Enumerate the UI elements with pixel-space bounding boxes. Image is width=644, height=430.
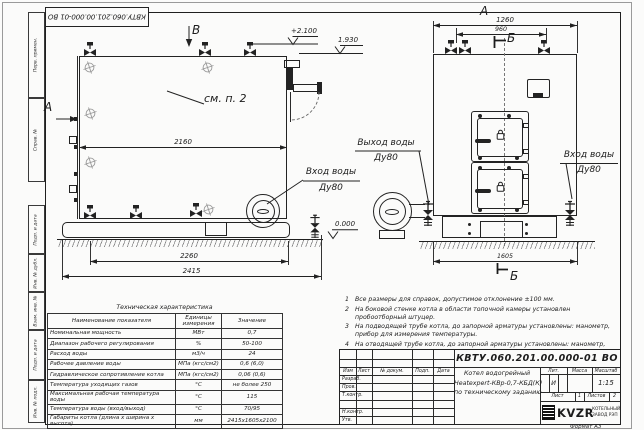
cell-name: Габариты котла (длина х ширина х высота) [48,414,176,428]
top-stamp-number: КВТУ.060.201.00.000-01 ВО [48,13,146,22]
note-item: 2 На боковой стенке котла в области топо… [345,306,617,322]
cell-name: Максимальная рабочая температура воды [48,390,176,404]
cell-value: 2415х1605х2100 [222,414,283,428]
cell-value: не более 250 [222,380,283,390]
table-row: Максимальная рабочая температура воды °С… [48,390,283,404]
note-num: 3 [345,323,355,339]
lit-label: Лит. [540,369,567,374]
door-bolt [478,208,482,212]
dim-960-value: 960 [495,27,507,33]
cell-value: 115 [222,390,283,404]
inlet-right-dn: Ду80 [558,165,620,175]
drawing-sheet: Перв. примен. Справ. № Подп. и дата Инв.… [0,0,644,430]
cell-value: 70/95 [222,404,283,414]
base-bolt [468,232,471,235]
dim-2160: 2160 [79,147,287,148]
frame-strip-label: Инв. № дубл. [34,257,39,288]
table-row: Температура воды (вход/выход) °С 70/95 [48,404,283,414]
crosshair-mark-icon [202,203,215,216]
valve-icon [189,202,203,217]
frame-strip-vzam-inv: Взам. инв. № [28,292,45,330]
note-text: На подводящей трубе котла, до запорной а… [355,323,617,339]
dim-1605-value: 1605 [497,254,513,260]
note-item: 3 На подводящей трубе котла, до запорной… [345,323,617,339]
frame-strip-perv-primen: Перв. примен. [28,12,45,98]
crosshair-mark-icon [201,61,214,74]
table-row: Диапазон рабочего регулирования % 50-100 [48,339,283,349]
org-name-1: КОТЕЛЬНЫЙ [592,407,620,412]
level-mid: 1.930 [338,36,358,44]
table-row: Гидравлическое сопротивление котла МПа (… [48,370,283,380]
inlet-valve-icon [563,198,577,226]
cell-name: Диапазон рабочего регулирования [48,339,176,349]
valve-icon [83,204,97,219]
note-num: 2 [345,306,355,322]
dim-1605: 1605 [433,261,577,262]
door-hinge [523,174,529,179]
crosshair-mark-icon [84,107,97,120]
view-mark-a-left: А [44,100,52,114]
tech-header-row: Наименование показателя Единицы измерени… [48,314,283,329]
cell-unit: °С [176,404,222,414]
row-nkontr: Н.контр. [342,410,363,415]
door-bolt [478,156,482,160]
cell-value: 0,7 [222,329,283,339]
dim-2160-value: 2160 [174,139,192,146]
valve-icon [198,41,212,56]
note-text: На боковой стенке котла в области топочн… [355,306,617,322]
wall-bolt [74,198,77,202]
outlet-flange-hub [385,209,399,215]
sheets-label: Листов [584,394,609,399]
view-mark-v: В [192,23,200,37]
door-bolt [507,114,511,118]
stamp-line [540,374,620,375]
wall-bolt [74,117,77,121]
stamp-line [540,401,620,402]
ext-line [546,28,547,43]
wall-bracket [69,136,77,144]
level-zero: 0.000 [335,220,355,228]
base-bolt [525,232,528,235]
wall-bolt [74,172,77,176]
dim-2415-value: 2415 [183,268,201,275]
scale-label: Масштаб [592,369,620,374]
ext-line [288,241,289,265]
section-mark-b-bottom: Б [510,269,518,283]
flue-pipe-cap [317,82,322,94]
ash-box [205,222,227,236]
base-bolt [525,223,528,226]
note-item: 1 Все размеры для справок, допустимое от… [345,296,617,304]
stamp-line [340,416,454,417]
format-label: Формат А3 [570,424,601,430]
sheet-label: Лист [540,394,575,399]
door-bolt [478,166,482,170]
row-utv: Утв. [342,418,352,423]
cell-unit: МВт [176,329,222,339]
stamp-line [412,350,413,424]
door-handle [475,139,491,143]
flue-pipe [293,84,319,92]
cell-name: Номинальная мощность [48,329,176,339]
col-list: Лист [356,369,372,374]
door-bolt [507,166,511,170]
table-row: Рабочее давление воды МПа (кгс/см2) 0,6 … [48,359,283,369]
stamp-line [340,383,454,384]
table-row: Номинальная мощность МВт 0,7 [48,329,283,339]
col-data: Дата [433,369,454,374]
dim-960: 960 [456,34,546,35]
row-tkontr: Т.контр. [342,393,363,398]
product-name-1: Котел водогрейный [454,370,540,377]
level-top: +2.100 [291,27,317,35]
inlet-left-label: Вход воды [301,167,361,177]
valve-icon [129,204,143,219]
frame-strip-sprav: Справ. № [28,98,45,182]
inlet-right-label: Вход воды [558,150,620,160]
frame-strip-label: Подп. и дата [34,214,39,245]
outlet-label: Выход воды [352,138,420,148]
product-name-3: по техническому заданию [454,389,540,396]
cell-value: 50-100 [222,339,283,349]
frame-strip-label: Инв. № подл. [34,386,39,418]
table-row: Температура уходящих газов °С не более 2… [48,380,283,390]
cell-unit: °С [176,380,222,390]
cell-name: Рабочее давление воды [48,359,176,369]
crosshair-mark-icon [84,156,97,169]
valve-icon [458,39,472,54]
frame-strip-inv-dubl: Инв. № дубл. [28,254,45,292]
row-razrab: Разраб. [342,377,361,382]
door-hinge [523,123,529,128]
cell-unit: мм [176,414,222,428]
frame-strip-label: Подп. и дата [34,339,39,370]
lit-value: И [549,379,558,387]
inlet-left-dn: Ду80 [301,183,361,193]
note-text: Все размеры для справок, допустимое откл… [355,296,555,304]
valve-icon [537,39,551,54]
frame-strip-podp-data-1: Подп. и дата [28,205,45,254]
tech-table: Наименование показателя Единицы измерени… [47,313,283,429]
note-num: 1 [345,296,355,304]
cell-value: 24 [222,349,283,359]
base-bolt [468,223,471,226]
door-handle [475,189,491,193]
door-hinge [523,149,529,154]
valve-icon [243,41,257,56]
mass-label: Масса [567,369,592,374]
see-note-ref: см. п. 2 [204,92,247,105]
ground-hatch-right [419,241,595,249]
ground-hatch-left [57,239,323,247]
col-izm: Изм [340,369,356,374]
cell-unit: м3/ч [176,349,222,359]
wall-bolt [74,145,77,149]
cell-name: Температура воды (вход/выход) [48,404,176,414]
top-rotated-stamp: КВТУ.060.201.00.000-01 ВО [45,7,149,27]
valve-icon [83,41,97,56]
tech-header: Наименование показателя [48,314,176,329]
lock-icon [496,129,505,140]
wall-bracket [69,185,77,193]
ext-line [577,21,578,53]
door-bolt [515,156,519,160]
dim-2260: 2260 [90,261,288,262]
dim-2415: 2415 [62,276,321,277]
lock-icon [496,181,505,192]
col-podp: Подп. [412,369,433,374]
cell-unit: МПа (кгс/см2) [176,359,222,369]
ext-line [577,241,578,265]
frame-strip-inv-podl: Инв. № подл. [28,380,45,423]
cell-unit: % [176,339,222,349]
frame-strip-label: Взам. инв. № [34,295,39,326]
kvzr-logo-text: KVZR [557,406,594,420]
door-hinge [523,200,529,205]
row-prov: Пров. [342,385,356,390]
scale-value: 1:15 [592,379,620,387]
table-row: Расход воды м3/ч 24 [48,349,283,359]
sheets-value: 2 [609,394,620,399]
flue-cap [284,60,300,68]
sheet-value: 1 [575,394,584,399]
door-bolt [515,208,519,212]
frame-strip-label: Справ. № [34,129,39,151]
frame-strip-podp-data-2: Подп. и дата [28,330,45,380]
table-row: Габариты котла (длина х ширина х высота)… [48,414,283,428]
product-name-2: Heatexpert-КВр-0,7-КБД(К) [454,380,540,387]
cell-name: Гидравлическое сопротивление котла [48,370,176,380]
outlet-flange-foot [379,230,405,239]
dim-1260-value: 1260 [496,17,514,24]
front-base-recess [480,221,523,238]
cell-value: 0,06 (0,6) [222,370,283,380]
stamp-line [558,374,559,392]
stamp-line [372,350,373,424]
title-block: КВТУ.060.201.00.000-01 ВО Изм Лист № док… [339,349,621,425]
frame-strip-label: Перв. примен. [34,38,39,73]
ext-line [321,235,322,280]
org-name-2: ЗАВОД РЭП [592,413,618,418]
col-ndocum: № докум. [372,369,412,374]
flue-drop-line [290,92,291,122]
dim-2260-value: 2260 [180,253,198,260]
outlet-dn: Ду80 [352,153,420,163]
view-mark-a-top: А [480,4,488,18]
door-bolt [478,114,482,118]
cell-name: Температура уходящих газов [48,380,176,390]
tech-header: Единицы измерения [176,314,222,329]
cell-unit: °С [176,390,222,404]
doc-number: КВТУ.060.201.00.000-01 ВО [454,353,620,364]
kvzr-logo-icon [542,405,555,420]
control-panel-label [533,93,543,97]
inlet-flange-hub [257,209,269,214]
ext-line [62,240,63,280]
tech-table-title: Техническая характеристика [47,304,282,311]
cell-name: Расход воды [48,349,176,359]
cell-value: 0,6 (6,0) [222,359,283,369]
crosshair-mark-icon [83,61,96,74]
stamp-line [340,400,454,401]
stamp-line [433,350,434,424]
ext-line [456,28,457,43]
tech-header: Значение [222,314,283,329]
stamp-line [340,359,454,360]
cell-unit: МПа (кгс/см2) [176,370,222,380]
